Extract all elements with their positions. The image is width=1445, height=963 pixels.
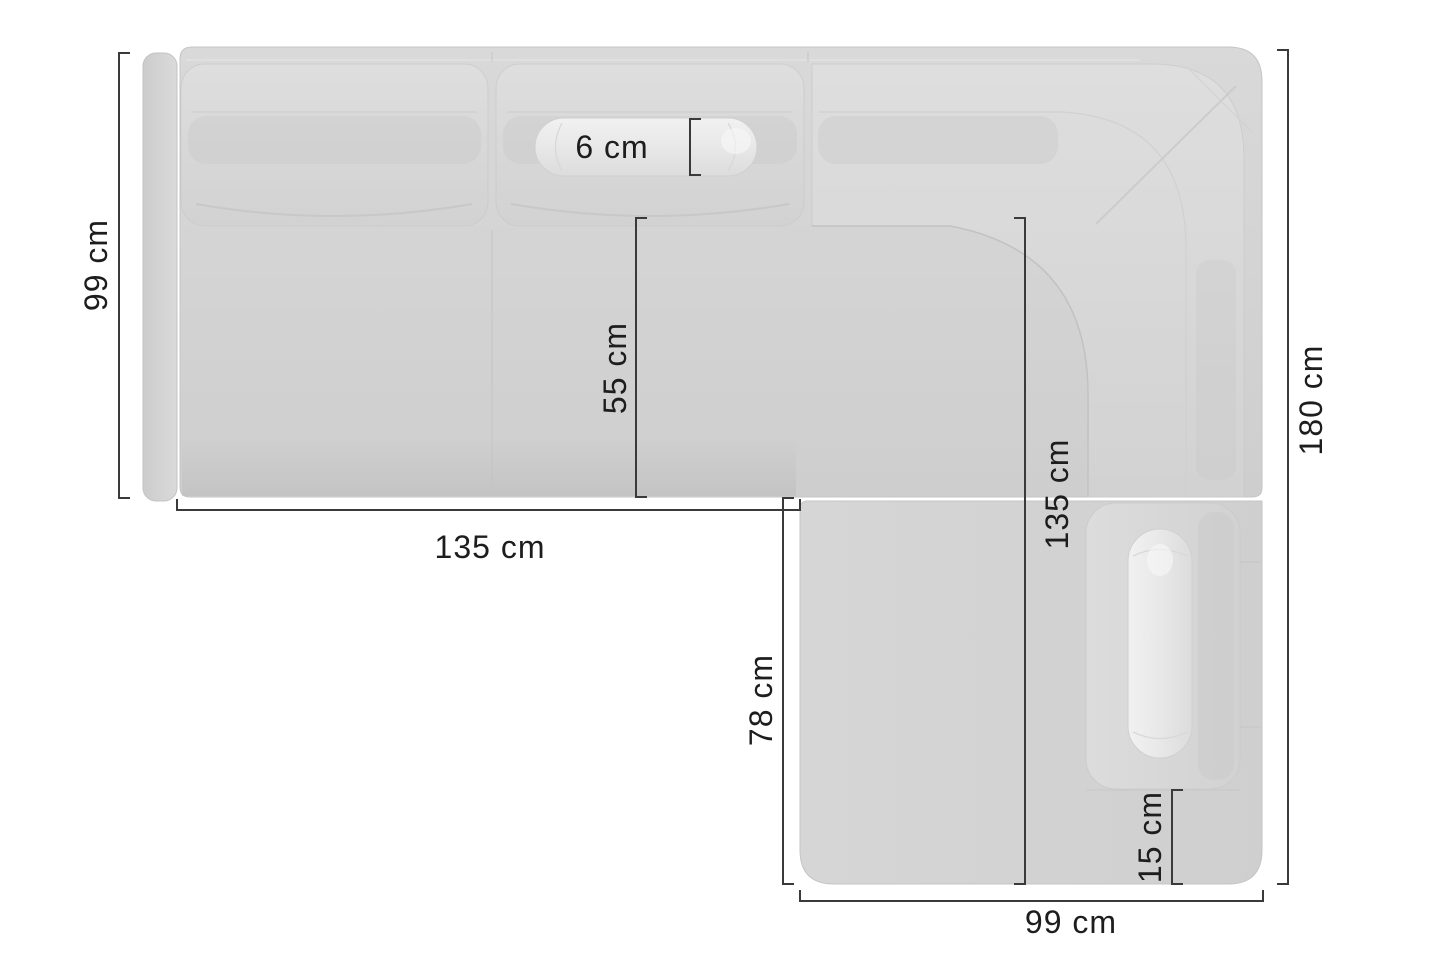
dim-label-left-section-width: 135 cm xyxy=(435,531,546,563)
bolster-pillow-vertical xyxy=(1128,529,1192,758)
dim-label-bolster-pillow: 6 cm xyxy=(575,131,648,163)
dim-label-chaise-inner-length: 78 cm xyxy=(745,654,777,746)
sofa-left-armrest xyxy=(143,53,177,501)
sofa-drawing xyxy=(143,47,1262,884)
dim-label-total-depth-right: 180 cm xyxy=(1295,345,1327,456)
dim-line-backrest-depth-left xyxy=(119,53,130,498)
dim-label-chaise-width: 99 cm xyxy=(1025,906,1117,938)
sofa-top-view-illustration xyxy=(0,0,1445,963)
dim-label-seat-depth: 55 cm xyxy=(599,322,631,414)
dim-line-left-section-width xyxy=(177,499,800,510)
dim-line-total-depth-right xyxy=(1277,50,1288,884)
dim-label-chaise-front-rail: 15 cm xyxy=(1134,791,1166,883)
dim-line-chaise-width xyxy=(800,890,1263,901)
dim-label-backrest-depth-left: 99 cm xyxy=(80,219,112,311)
dim-label-inner-depth-right: 135 cm xyxy=(1041,439,1073,550)
diagram-canvas: 99 cm 6 cm 55 cm 135 cm 135 cm 78 cm 15 … xyxy=(0,0,1445,963)
back-cushion-left xyxy=(181,64,488,226)
seat-front-shading xyxy=(182,438,796,496)
dim-line-chaise-inner-length xyxy=(783,498,794,884)
